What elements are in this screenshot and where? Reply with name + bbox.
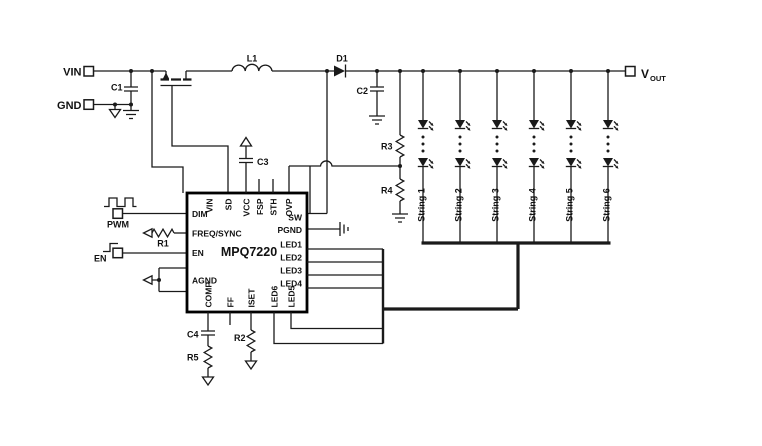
l1-label: L1 — [247, 54, 258, 64]
capacitor-c2: C2 — [356, 71, 385, 124]
resistor-r4: R4 — [381, 166, 408, 222]
led-icon — [418, 158, 434, 169]
led-icon — [566, 120, 582, 131]
pwm-terminal: PWM — [104, 198, 187, 230]
diode-d1: D1 — [334, 54, 348, 78]
string-1-label: String 1 — [417, 188, 427, 222]
inductor-l1: L1 — [232, 54, 272, 72]
pin-led6: LED6 — [270, 286, 280, 308]
led-icon — [455, 120, 471, 131]
pin-ff: FF — [226, 297, 236, 307]
led-string-4: String 4 — [528, 71, 545, 243]
pin-iset: ISET — [247, 288, 257, 308]
led-icon — [566, 158, 582, 169]
pin-en: EN — [192, 248, 204, 258]
gate-to-sd-wire — [172, 86, 228, 194]
ground-arrow-left-icon — [144, 276, 153, 284]
led-string-6: String 6 — [602, 71, 619, 243]
en-terminal: EN — [94, 244, 187, 264]
d1-label: D1 — [336, 54, 348, 64]
ovp-wire-hop — [289, 161, 400, 166]
led-icon — [603, 120, 619, 131]
pin-led2: LED2 — [280, 253, 302, 263]
pin-freq-sync: FREQ/SYNC — [192, 229, 242, 239]
led-string-2: String 2 — [454, 71, 471, 243]
string-4-label: String 4 — [528, 188, 538, 222]
vout-terminal-sub-label: OUT — [650, 74, 666, 83]
pin-led1: LED1 — [280, 240, 302, 250]
led-feedback-wires — [274, 243, 611, 344]
r5-label: R5 — [187, 353, 199, 363]
gnd-terminal-label: GND — [57, 100, 82, 112]
schematic-page: VIN GND C1 L1 D1 C2 — [0, 0, 762, 446]
vout-terminal: V OUT — [626, 67, 667, 84]
ground-arrow-icon — [246, 356, 257, 369]
led-icon — [529, 120, 545, 131]
ground-arrow-icon — [203, 372, 214, 385]
r4-label: R4 — [381, 186, 393, 196]
c1-label: C1 — [111, 83, 123, 93]
pin-fsp: FSP — [255, 198, 265, 215]
vout-terminal-pad — [626, 67, 636, 77]
vout-terminal-label: V — [641, 67, 649, 81]
string-6-label: String 6 — [602, 188, 612, 222]
vin-terminal-pad — [84, 67, 94, 77]
led-icon — [418, 120, 434, 131]
pin-sw: SW — [288, 213, 303, 223]
resistor-r1: R1 — [144, 229, 188, 249]
pin-comp: COMP — [204, 282, 214, 308]
vin-terminal-label: VIN — [63, 67, 81, 79]
ic-name: MPQ7220 — [221, 245, 277, 259]
led-icon — [529, 158, 545, 169]
gnd-terminal-pad — [84, 100, 94, 110]
led-icon — [455, 158, 471, 169]
led-string-5: String 5 — [565, 71, 582, 243]
c2-label: C2 — [356, 86, 368, 96]
junction-dots — [113, 69, 610, 168]
pin-sd: SD — [224, 199, 234, 211]
led-string-3: String 3 — [491, 71, 508, 243]
c3-label: C3 — [257, 157, 269, 167]
schematic-canvas: VIN GND C1 L1 D1 C2 — [0, 0, 762, 446]
string-2-label: String 2 — [454, 188, 464, 222]
resistor-r2: R2 — [234, 312, 257, 369]
en-terminal-pad — [113, 248, 123, 258]
led-string-1: String 1 — [417, 71, 434, 243]
pin-dim: DIM — [192, 209, 208, 219]
pin-led5: LED5 — [287, 286, 297, 308]
capacitor-c3: C3 — [239, 138, 269, 194]
string-return-bus — [383, 243, 611, 309]
pin-led3: LED3 — [280, 266, 302, 276]
r2-label: R2 — [234, 333, 246, 343]
ground-arrow-up-icon — [241, 138, 252, 147]
string-5-label: String 5 — [565, 188, 575, 222]
ground-arrow-left-icon — [144, 229, 153, 237]
string-3-label: String 3 — [491, 188, 501, 222]
led-icon — [492, 158, 508, 169]
pwm-terminal-label: PWM — [107, 220, 129, 230]
agnd-connection — [144, 268, 188, 292]
gnd-terminal: GND — [57, 100, 93, 112]
pgnd-ground — [307, 222, 348, 236]
en-terminal-label: EN — [94, 254, 107, 264]
earth-ground-icon — [392, 208, 408, 222]
square-wave-icon — [104, 198, 137, 207]
led-icon — [603, 158, 619, 169]
c4-label: C4 — [187, 330, 199, 340]
vin-terminal: VIN — [63, 67, 93, 79]
led-icon — [492, 120, 508, 131]
resistor-r3: R3 — [381, 71, 404, 166]
pin-pgnd: PGND — [277, 225, 302, 235]
comp-network: C4 R5 — [187, 312, 215, 385]
ic-mpq7220: MPQ7220 VIN SD VCC FSP STH OVP DIM FREQ/… — [187, 193, 307, 312]
pin-vcc: VCC — [242, 199, 252, 217]
pmos-switch — [161, 71, 229, 193]
r1-label: R1 — [157, 239, 169, 249]
earth-ground-icon — [369, 110, 385, 124]
earth-ground-icon — [123, 105, 139, 119]
r3-label: R3 — [381, 142, 393, 152]
pin-sth: STH — [269, 199, 279, 216]
pwm-terminal-pad — [113, 209, 123, 219]
